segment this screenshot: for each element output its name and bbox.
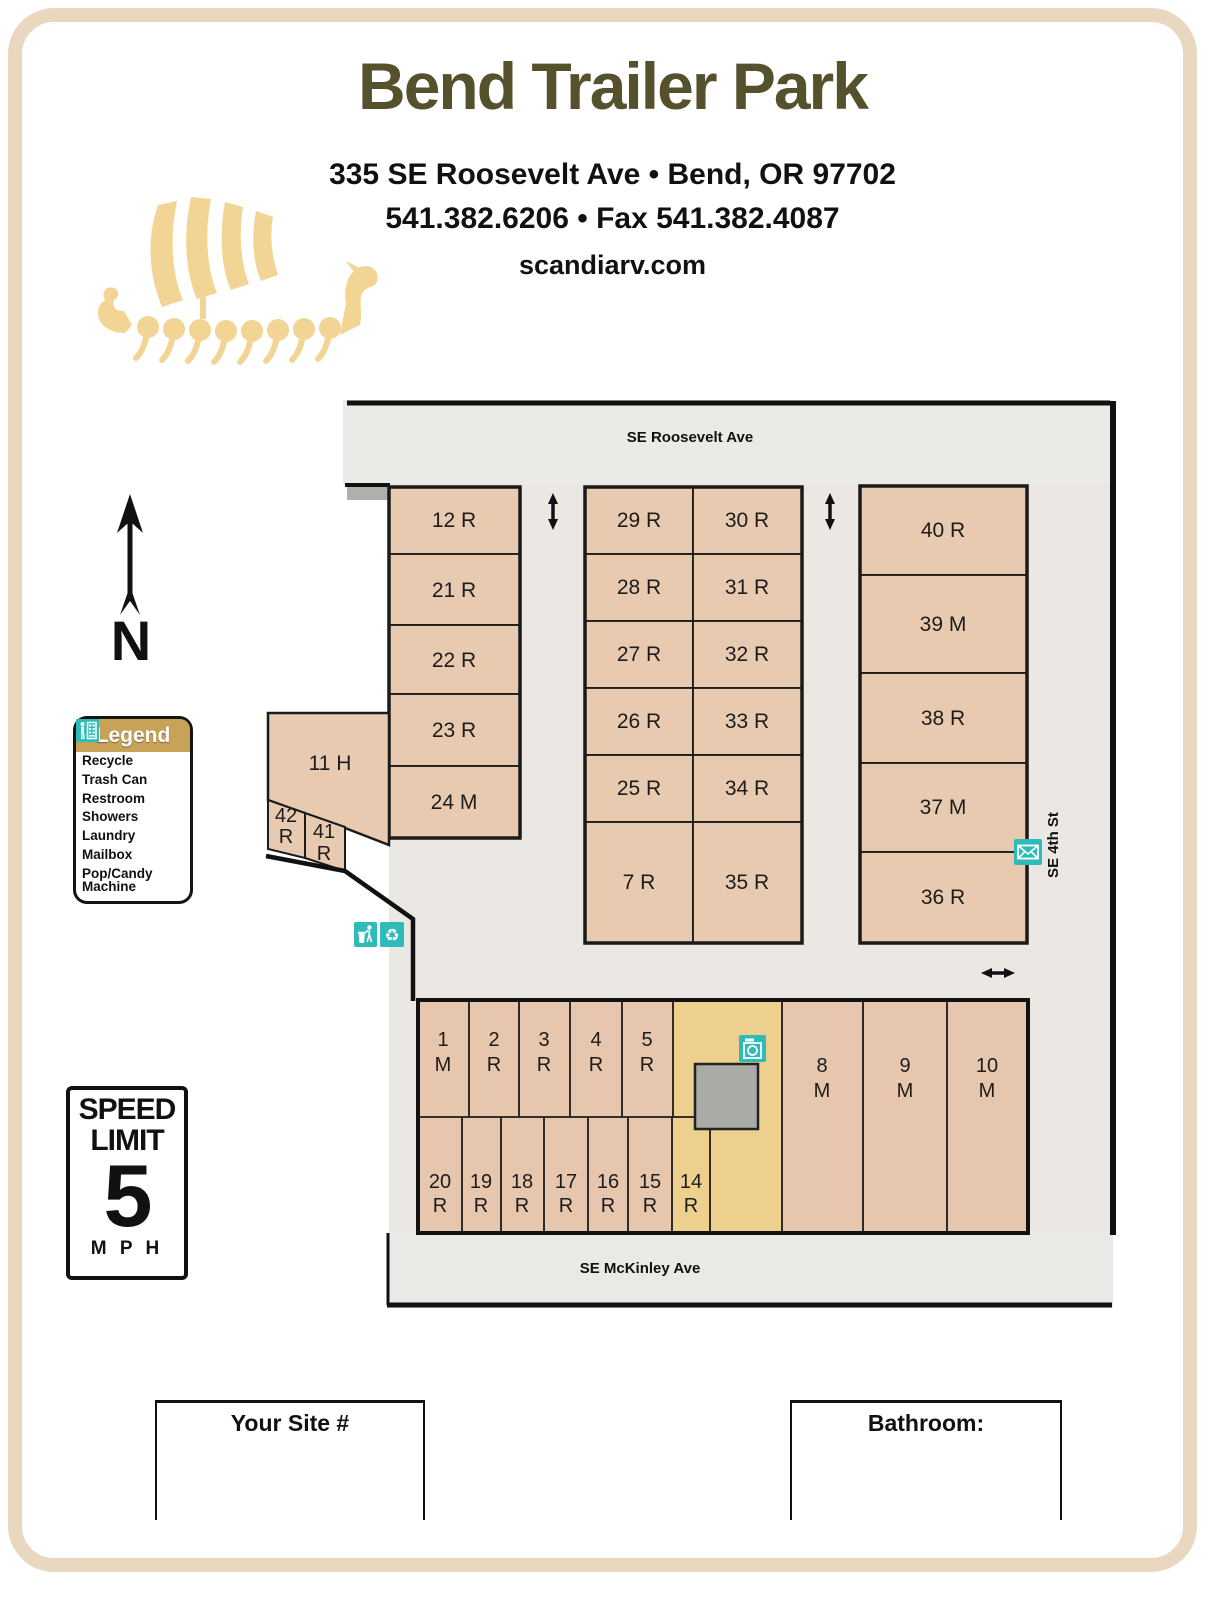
svg-text:3: 3 xyxy=(538,1029,549,1051)
svg-text:M: M xyxy=(814,1080,831,1102)
north-label: N xyxy=(111,609,151,672)
svg-text:33 R: 33 R xyxy=(725,710,769,733)
bathroom-label: Bathroom: xyxy=(868,1410,984,1436)
lot-group-south xyxy=(418,1000,1028,1233)
north-arrow-icon xyxy=(117,494,143,615)
legend-item-restroom: Restroom xyxy=(76,790,190,809)
road-mckinley-surface xyxy=(387,1233,1113,1308)
legend-item-recycle: ♻ Recycle xyxy=(76,752,190,771)
svg-text:30 R: 30 R xyxy=(725,509,769,532)
svg-text:11 H: 11 H xyxy=(309,752,352,775)
street-label-roosevelt: SE Roosevelt Ave xyxy=(627,429,753,446)
svg-text:R: R xyxy=(279,826,293,848)
svg-text:40 R: 40 R xyxy=(921,519,965,542)
svg-text:35 R: 35 R xyxy=(725,871,769,894)
legend-panel: Legend ♻ Recycle Trash Can Restroom xyxy=(73,716,193,904)
svg-text:27 R: 27 R xyxy=(617,643,661,666)
mailbox-icon xyxy=(1014,839,1042,865)
legend-item-showers: Showers xyxy=(76,808,190,827)
svg-text:7 R: 7 R xyxy=(623,871,656,894)
svg-text:R: R xyxy=(559,1195,573,1217)
svg-text:21 R: 21 R xyxy=(432,579,476,602)
trailer-park-map-page: { "header": { "title": "Bend Trailer Par… xyxy=(0,0,1225,1600)
svg-text:42: 42 xyxy=(275,805,297,827)
svg-text:17: 17 xyxy=(555,1171,577,1193)
svg-text:37 M: 37 M xyxy=(920,796,967,819)
legend-item-trash-can: Trash Can xyxy=(76,771,190,790)
speed-sign-word: SPEED xyxy=(70,1094,184,1126)
street-label-mckinley: SE McKinley Ave xyxy=(580,1260,701,1277)
svg-text:5: 5 xyxy=(641,1029,652,1051)
svg-text:R: R xyxy=(601,1195,615,1217)
svg-text:2: 2 xyxy=(488,1029,499,1051)
svg-text:4: 4 xyxy=(590,1029,601,1051)
svg-text:14: 14 xyxy=(680,1171,702,1193)
street-label-4th-st: SE 4th St xyxy=(1045,812,1062,878)
svg-text:R: R xyxy=(684,1195,698,1217)
svg-text:R: R xyxy=(433,1195,447,1217)
svg-text:R: R xyxy=(515,1195,529,1217)
svg-text:20: 20 xyxy=(429,1171,451,1193)
svg-text:25 R: 25 R xyxy=(617,777,661,800)
svg-text:32 R: 32 R xyxy=(725,643,769,666)
svg-text:12 R: 12 R xyxy=(432,509,476,532)
laundry-icon xyxy=(739,1035,766,1062)
svg-text:23 R: 23 R xyxy=(432,719,476,742)
svg-text:R: R xyxy=(643,1195,657,1217)
svg-text:R: R xyxy=(474,1195,488,1217)
speed-sign-value: 5 xyxy=(70,1156,184,1237)
svg-text:♻: ♻ xyxy=(384,926,399,945)
svg-text:8: 8 xyxy=(816,1055,827,1077)
svg-text:36 R: 36 R xyxy=(921,886,965,909)
svg-text:28 R: 28 R xyxy=(617,576,661,599)
svg-text:R: R xyxy=(589,1054,603,1076)
your-site-number-box: Your Site # xyxy=(155,1400,425,1520)
svg-text:34 R: 34 R xyxy=(725,777,769,800)
bathroom-box: Bathroom: xyxy=(790,1400,1062,1520)
svg-text:M: M xyxy=(979,1080,996,1102)
legend-item-laundry: Laundry xyxy=(76,827,190,846)
vending-machine-icon xyxy=(76,719,99,742)
svg-text:16: 16 xyxy=(597,1171,619,1193)
speed-limit-sign: SPEED LIMIT 5 M P H xyxy=(66,1086,188,1280)
svg-text:M: M xyxy=(897,1080,914,1102)
svg-text:9: 9 xyxy=(899,1055,910,1077)
svg-text:18: 18 xyxy=(511,1171,533,1193)
svg-text:31 R: 31 R xyxy=(725,576,769,599)
laundry-building xyxy=(695,1064,758,1129)
your-site-number-label: Your Site # xyxy=(231,1410,349,1436)
svg-text:15: 15 xyxy=(639,1171,661,1193)
svg-text:R: R xyxy=(317,843,331,865)
trash-can-icon xyxy=(354,922,377,947)
svg-text:24 M: 24 M xyxy=(431,791,478,814)
svg-text:19: 19 xyxy=(470,1171,492,1193)
svg-text:29 R: 29 R xyxy=(617,509,661,532)
svg-text:M: M xyxy=(435,1054,452,1076)
svg-text:10: 10 xyxy=(976,1055,998,1077)
svg-text:1: 1 xyxy=(437,1029,448,1051)
svg-text:26 R: 26 R xyxy=(617,710,661,733)
recycle-icon: ♻ xyxy=(380,922,404,947)
legend-item-mailbox: Mailbox xyxy=(76,846,190,865)
svg-text:38 R: 38 R xyxy=(921,707,965,730)
svg-text:39 M: 39 M xyxy=(920,613,967,636)
svg-text:R: R xyxy=(640,1054,654,1076)
speed-sign-unit: M P H xyxy=(70,1238,184,1260)
svg-text:R: R xyxy=(537,1054,551,1076)
svg-text:22 R: 22 R xyxy=(432,649,476,672)
svg-text:R: R xyxy=(487,1054,501,1076)
svg-text:41: 41 xyxy=(313,821,335,843)
legend-item-vending: Pop/Candy Machine xyxy=(76,865,190,897)
